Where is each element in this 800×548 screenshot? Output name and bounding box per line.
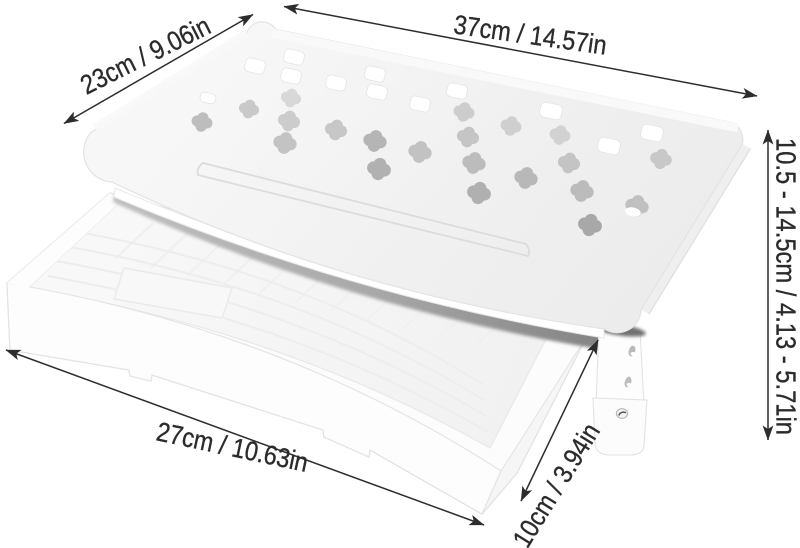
svg-text:10.5 - 14.5cm / 4.13 - 5.71in: 10.5 - 14.5cm / 4.13 - 5.71in [770, 138, 800, 435]
